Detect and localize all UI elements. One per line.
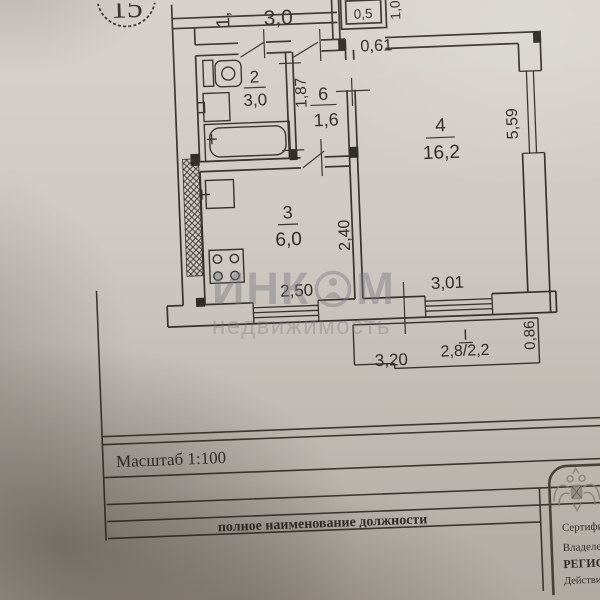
- bathroom-number: 2: [249, 67, 259, 86]
- floor-plan-drawing: 1, 3,0 0,5 1,0 0,61 1,87 6 1,6 2 3,0 3 6…: [0, 0, 600, 600]
- kitchen-area: 6,0: [275, 229, 302, 251]
- frame-lines: [96, 270, 600, 600]
- hallway-number: 1,: [213, 11, 235, 28]
- bathroom-area: 3,0: [243, 90, 267, 110]
- closet-area: 0,5: [353, 6, 372, 22]
- toilet-icon: [203, 60, 214, 86]
- stamp-line-4: Действит: [564, 574, 600, 587]
- certificate-stamp: Сертифик Владелец РЕГИСТ Действит: [549, 457, 600, 600]
- sink-icon: [203, 93, 230, 122]
- floor-plan-sheet: 1, 3,0 0,5 1,0 0,61 1,87 6 1,6 2 3,0 3 6…: [0, 0, 600, 600]
- balcony-area: 2,8/2,2: [440, 342, 490, 361]
- bathroom-dim-height: 1,87: [292, 77, 310, 108]
- walls: [156, 0, 559, 377]
- photo-background: 1, 3,0 0,5 1,0 0,61 1,87 6 1,6 2 3,0 3 6…: [0, 0, 600, 600]
- sheet-number: 15: [110, 0, 143, 25]
- stamp-line-2: Владелец: [562, 540, 600, 554]
- balcony-number: I: [463, 327, 468, 344]
- closet-dim-right: 1,0: [387, 0, 404, 20]
- dimension-ticks: [242, 22, 473, 351]
- scale-label: Масштаб 1:100: [116, 448, 227, 471]
- kitchen-dim-height: 2,40: [336, 219, 354, 251]
- kitchen-fixtures: [201, 179, 244, 283]
- kitchen-number: 3: [282, 202, 293, 222]
- hallway-area: 3,0: [263, 6, 293, 30]
- living-room-dim-height: 5,59: [504, 108, 522, 140]
- balcony-dim-depth: 0,86: [521, 320, 539, 350]
- stamp-line-1: Сертифик: [562, 520, 600, 534]
- eagle-emblem-icon: [553, 468, 600, 512]
- living-room-dim-width: 3,01: [431, 273, 465, 293]
- sheet-number-stamp: 15: [96, 0, 156, 28]
- living-room-area: 16,2: [423, 142, 461, 164]
- living-room-number: 4: [435, 115, 447, 136]
- corridor-number: 6: [318, 84, 329, 104]
- kitchen-dim-width: 2,50: [280, 280, 314, 300]
- corridor-area: 1,6: [313, 109, 339, 130]
- closet-door-width: 0,61: [360, 36, 393, 55]
- stamp-line-3: РЕГИСТ: [563, 555, 600, 571]
- balcony-dim-width: 3,20: [374, 350, 408, 370]
